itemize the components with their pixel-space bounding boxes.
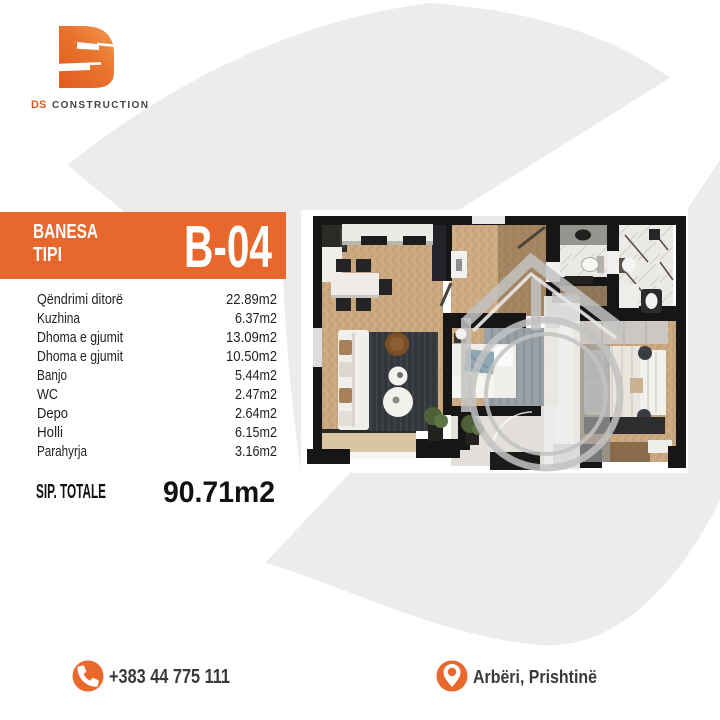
svg-text:13.09m2: 13.09m2: [226, 330, 277, 346]
svg-text:Kuzhina: Kuzhina: [37, 311, 81, 327]
svg-text:Qëndrimi ditorë: Qëndrimi ditorë: [37, 292, 123, 308]
svg-text:WC: WC: [37, 387, 58, 403]
svg-text:B-04: B-04: [184, 214, 272, 280]
svg-text:SIP. TOTALE: SIP. TOTALE: [36, 480, 106, 503]
svg-text:CONSTRUCTION: CONSTRUCTION: [52, 100, 149, 111]
svg-text:Parahyrja: Parahyrja: [37, 444, 88, 460]
svg-text:BANESA: BANESA: [33, 221, 98, 243]
svg-text:+383 44 775 111: +383 44 775 111: [109, 666, 230, 688]
svg-text:22.89m2: 22.89m2: [226, 292, 277, 308]
svg-text:6.37m2: 6.37m2: [235, 311, 277, 327]
svg-text:DS: DS: [31, 99, 46, 111]
svg-text:Banjo: Banjo: [37, 368, 67, 384]
svg-text:10.50m2: 10.50m2: [226, 349, 277, 365]
svg-text:Holli: Holli: [37, 425, 63, 441]
svg-text:Arbëri, Prishtinë: Arbëri, Prishtinë: [473, 666, 597, 687]
svg-text:90.71m2: 90.71m2: [163, 476, 275, 509]
svg-text:Dhoma e gjumit: Dhoma e gjumit: [37, 330, 123, 346]
svg-text:Depo: Depo: [37, 406, 68, 422]
svg-text:5.44m2: 5.44m2: [235, 368, 277, 384]
svg-text:3.16m2: 3.16m2: [235, 444, 277, 460]
svg-text:2.64m2: 2.64m2: [235, 406, 277, 422]
svg-text:2.47m2: 2.47m2: [235, 387, 277, 403]
svg-text:Dhoma e gjumit: Dhoma e gjumit: [37, 349, 123, 365]
svg-text:6.15m2: 6.15m2: [235, 425, 277, 441]
svg-text:TIPI: TIPI: [33, 244, 62, 266]
